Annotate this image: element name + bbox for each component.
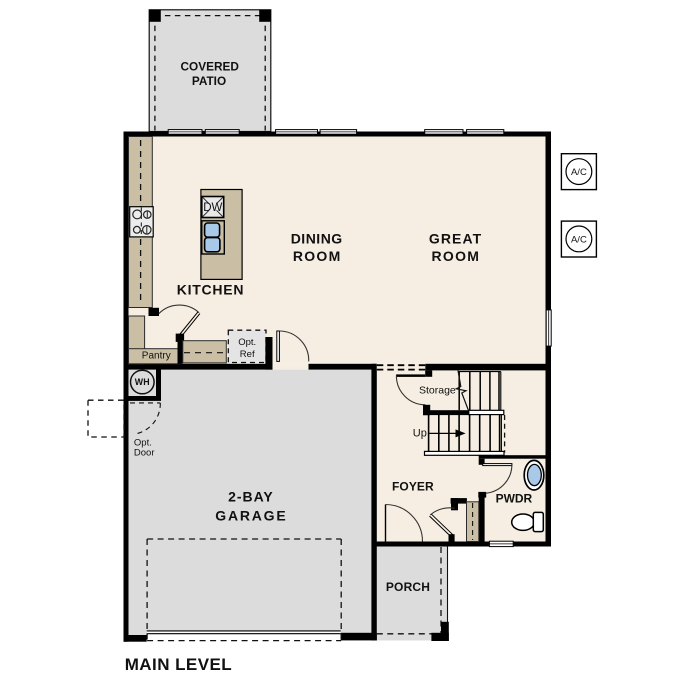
svg-text:Ref: Ref — [240, 349, 255, 360]
svg-text:Storage: Storage — [419, 385, 456, 397]
svg-text:PATIO: PATIO — [192, 74, 226, 88]
svg-text:PORCH: PORCH — [386, 580, 430, 594]
svg-text:GREAT: GREAT — [429, 230, 482, 246]
svg-text:ROOM: ROOM — [293, 248, 342, 264]
svg-text:GARAGE: GARAGE — [215, 507, 287, 523]
svg-text:WH: WH — [135, 377, 150, 387]
svg-text:PWDR: PWDR — [496, 491, 533, 505]
svg-text:FOYER: FOYER — [392, 480, 434, 494]
svg-text:MAIN LEVEL: MAIN LEVEL — [125, 655, 232, 674]
svg-text:DINING: DINING — [291, 230, 343, 246]
svg-text:Pantry: Pantry — [142, 351, 171, 362]
svg-text:A/C: A/C — [571, 167, 587, 178]
svg-text:2-BAY: 2-BAY — [228, 489, 273, 505]
svg-text:KITCHEN: KITCHEN — [177, 282, 244, 298]
svg-text:ROOM: ROOM — [432, 248, 481, 264]
svg-text:Up: Up — [413, 428, 427, 440]
svg-text:Opt.: Opt. — [238, 337, 256, 348]
svg-text:Door: Door — [134, 447, 155, 458]
svg-text:COVERED: COVERED — [181, 60, 240, 74]
svg-text:DW: DW — [203, 202, 222, 214]
svg-text:A/C: A/C — [571, 234, 587, 245]
